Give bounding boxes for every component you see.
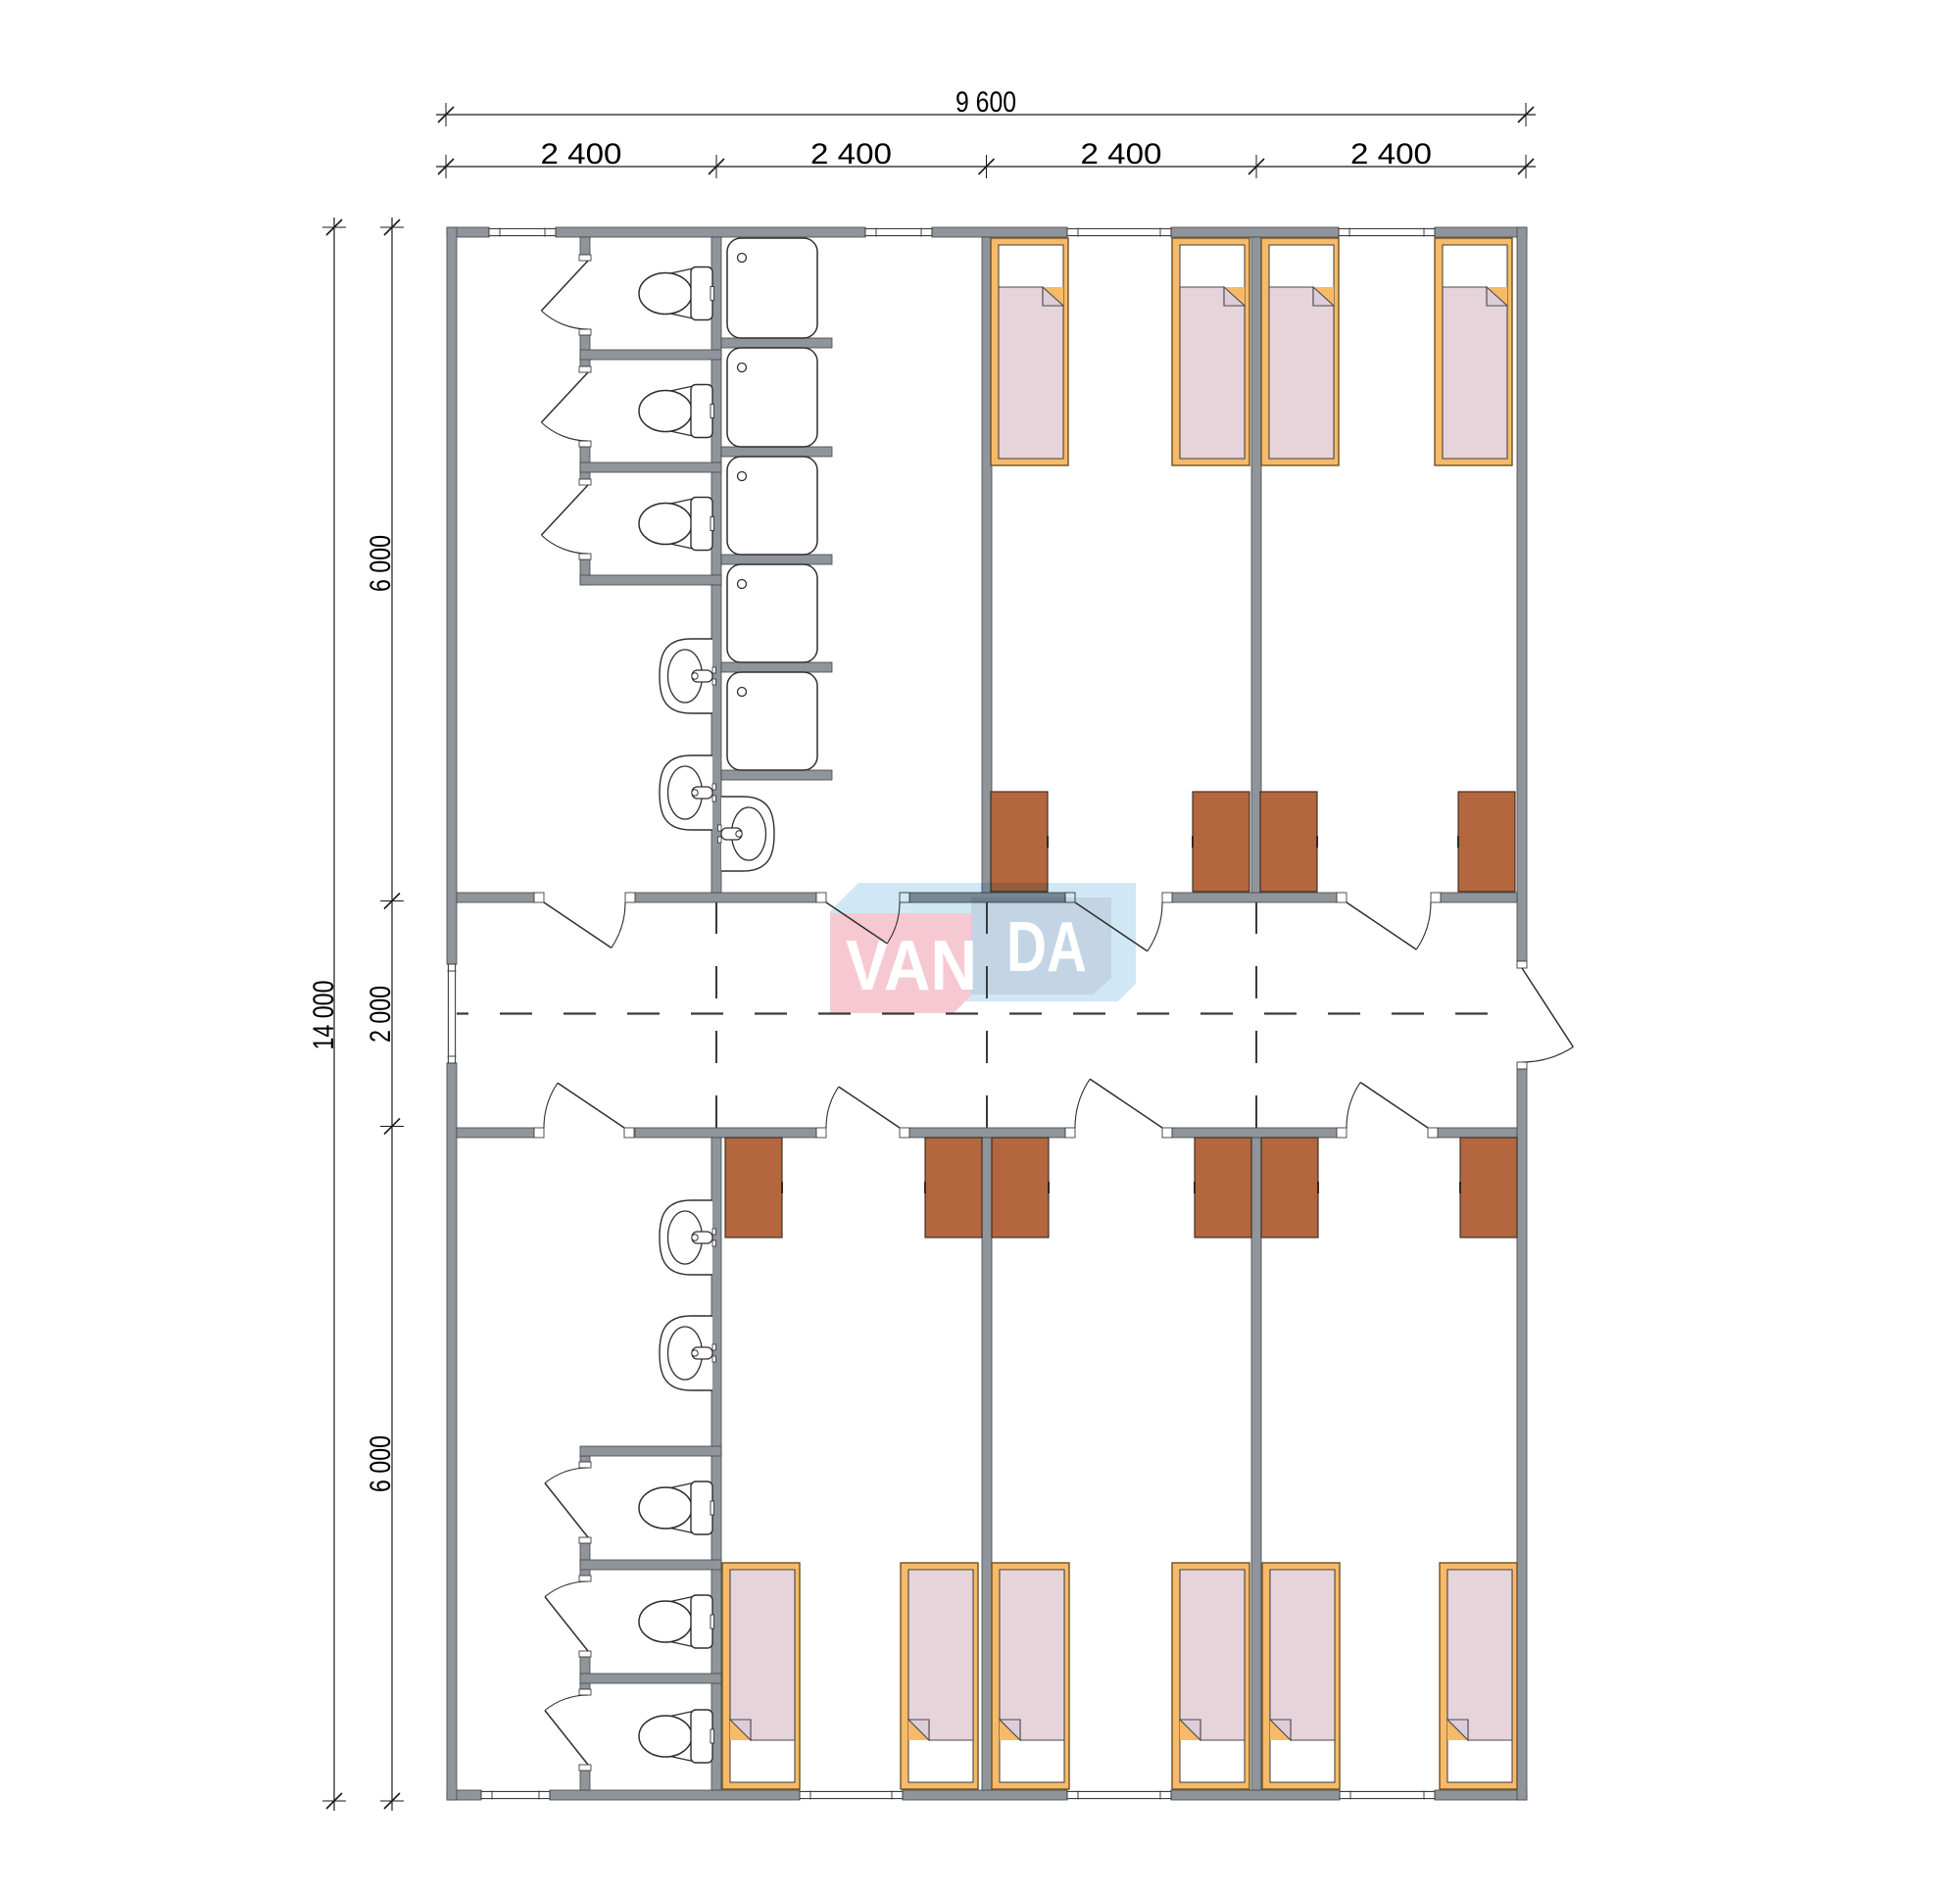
svg-text:6 000: 6 000 bbox=[365, 1435, 397, 1492]
svg-text:9 600: 9 600 bbox=[955, 86, 1016, 119]
svg-text:2 000: 2 000 bbox=[365, 986, 397, 1043]
svg-text:VAN: VAN bbox=[846, 927, 977, 1005]
svg-text:2 400: 2 400 bbox=[1081, 138, 1162, 170]
svg-text:2 400: 2 400 bbox=[1350, 138, 1432, 170]
svg-text:14 000: 14 000 bbox=[308, 981, 340, 1050]
svg-text:2 400: 2 400 bbox=[810, 138, 892, 170]
svg-text:DA: DA bbox=[1006, 908, 1087, 987]
svg-text:2 400: 2 400 bbox=[541, 138, 622, 170]
svg-text:6 000: 6 000 bbox=[365, 535, 397, 592]
